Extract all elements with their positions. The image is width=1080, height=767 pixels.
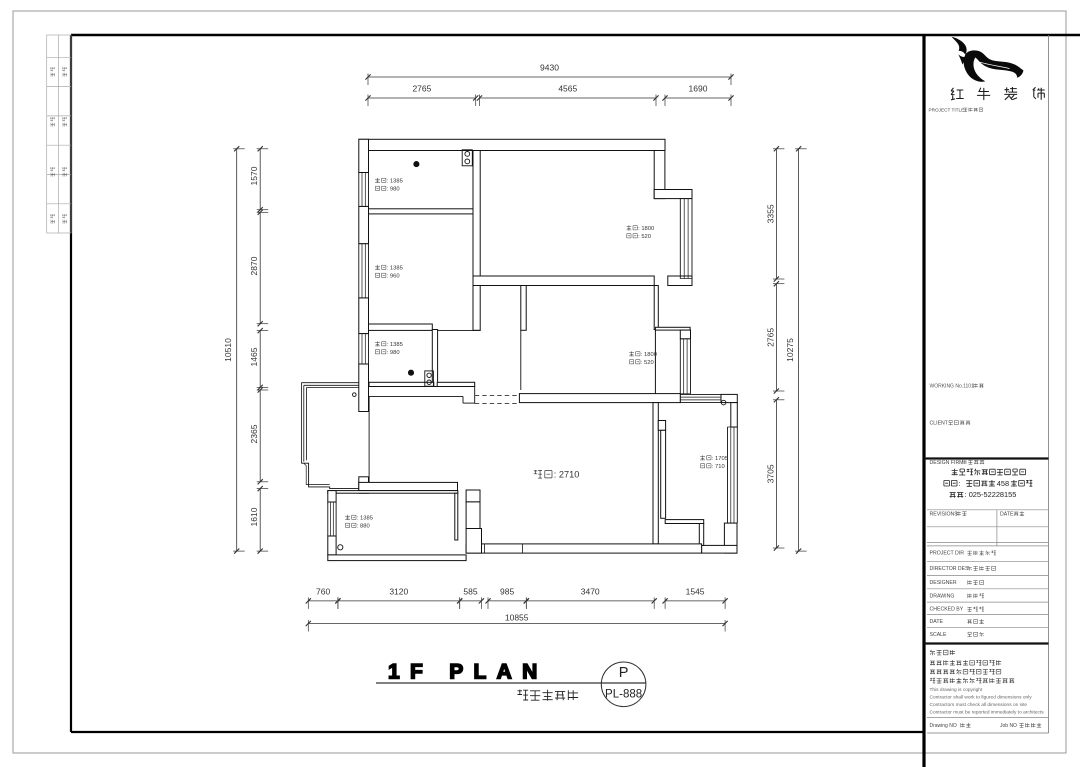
- svg-text:SCALE: SCALE: [930, 632, 948, 638]
- svg-text:1570: 1570: [249, 166, 259, 185]
- svg-text:DESIGNER: DESIGNER: [930, 580, 957, 586]
- svg-text:: 025-52228155: : 025-52228155: [965, 490, 1017, 499]
- svg-text:: 1385: : 1385: [387, 179, 403, 185]
- svg-text:1690: 1690: [689, 84, 708, 94]
- svg-text:P: P: [619, 665, 629, 681]
- svg-text:: 960: : 960: [387, 274, 400, 280]
- svg-text:: 710: : 710: [712, 464, 725, 470]
- svg-text:Contractor must be reported im: Contractor must be reported immediately …: [930, 709, 1045, 715]
- svg-text:1545: 1545: [686, 587, 705, 597]
- svg-text:3120: 3120: [389, 587, 408, 597]
- svg-text:458: 458: [997, 479, 1009, 488]
- svg-text:3355: 3355: [765, 204, 775, 223]
- svg-text:: 1800: : 1800: [638, 226, 654, 232]
- svg-text:DATE: DATE: [930, 619, 944, 625]
- svg-text:CHECKED BY: CHECKED BY: [930, 607, 964, 613]
- svg-text:PROJECT TITLE: PROJECT TITLE: [929, 108, 965, 113]
- svg-text:1610: 1610: [249, 507, 259, 526]
- svg-text:: 980: : 980: [387, 350, 400, 356]
- svg-text:: 880: : 880: [357, 524, 370, 530]
- svg-text:1465: 1465: [249, 347, 259, 366]
- svg-text:9430: 9430: [540, 63, 559, 73]
- svg-text:2365: 2365: [249, 424, 259, 443]
- svg-text:REVISIONS: REVISIONS: [930, 511, 959, 517]
- svg-text:DESIGN FIRM: DESIGN FIRM: [930, 460, 964, 466]
- svg-text::: :: [959, 479, 961, 488]
- svg-text:: 1385: : 1385: [387, 342, 403, 348]
- svg-text:985: 985: [500, 587, 514, 597]
- svg-text:Drawing NO: Drawing NO: [930, 723, 957, 729]
- svg-text:3705: 3705: [765, 464, 775, 483]
- svg-text:: 1385: : 1385: [387, 266, 403, 272]
- svg-text:CLIENT: CLIENT: [930, 421, 949, 427]
- svg-text:1F PLAN: 1F PLAN: [388, 661, 548, 684]
- svg-text:: 1800: : 1800: [641, 352, 657, 358]
- svg-text:PL-888: PL-888: [605, 689, 642, 701]
- svg-text:: 1705: : 1705: [712, 456, 728, 462]
- svg-text:2870: 2870: [249, 256, 259, 275]
- svg-text:DATE: DATE: [1000, 511, 1014, 517]
- svg-text:Contractor shall work to figur: Contractor shall work to figured dimensi…: [930, 695, 1033, 701]
- svg-text:4565: 4565: [558, 84, 577, 94]
- svg-text:: 980: : 980: [387, 187, 400, 193]
- svg-text:Contractors must check all dim: Contractors must check all dimensions on…: [930, 702, 1028, 708]
- svg-text:: 520: : 520: [641, 360, 654, 366]
- svg-text:2765: 2765: [412, 84, 431, 94]
- svg-text:10510: 10510: [223, 338, 233, 362]
- svg-text:: 1385: : 1385: [357, 516, 373, 522]
- svg-text:WORKING No.1101: WORKING No.1101: [930, 384, 975, 390]
- svg-text:10855: 10855: [505, 612, 529, 622]
- svg-text:This drawing is copyright: This drawing is copyright: [930, 687, 983, 693]
- svg-text:: 2710: : 2710: [554, 470, 580, 480]
- svg-text:10275: 10275: [785, 338, 795, 362]
- svg-text:DRAWING: DRAWING: [930, 593, 955, 599]
- svg-text:DIRECTOR DES: DIRECTOR DES: [930, 566, 970, 572]
- svg-text:: 520: : 520: [638, 234, 651, 240]
- svg-text:585: 585: [463, 587, 477, 597]
- svg-text:760: 760: [316, 587, 330, 597]
- svg-text:3470: 3470: [581, 587, 600, 597]
- svg-text:PROJECT DIR: PROJECT DIR: [930, 551, 965, 557]
- svg-text:Job NO: Job NO: [1000, 723, 1017, 729]
- svg-text:2765: 2765: [765, 328, 775, 347]
